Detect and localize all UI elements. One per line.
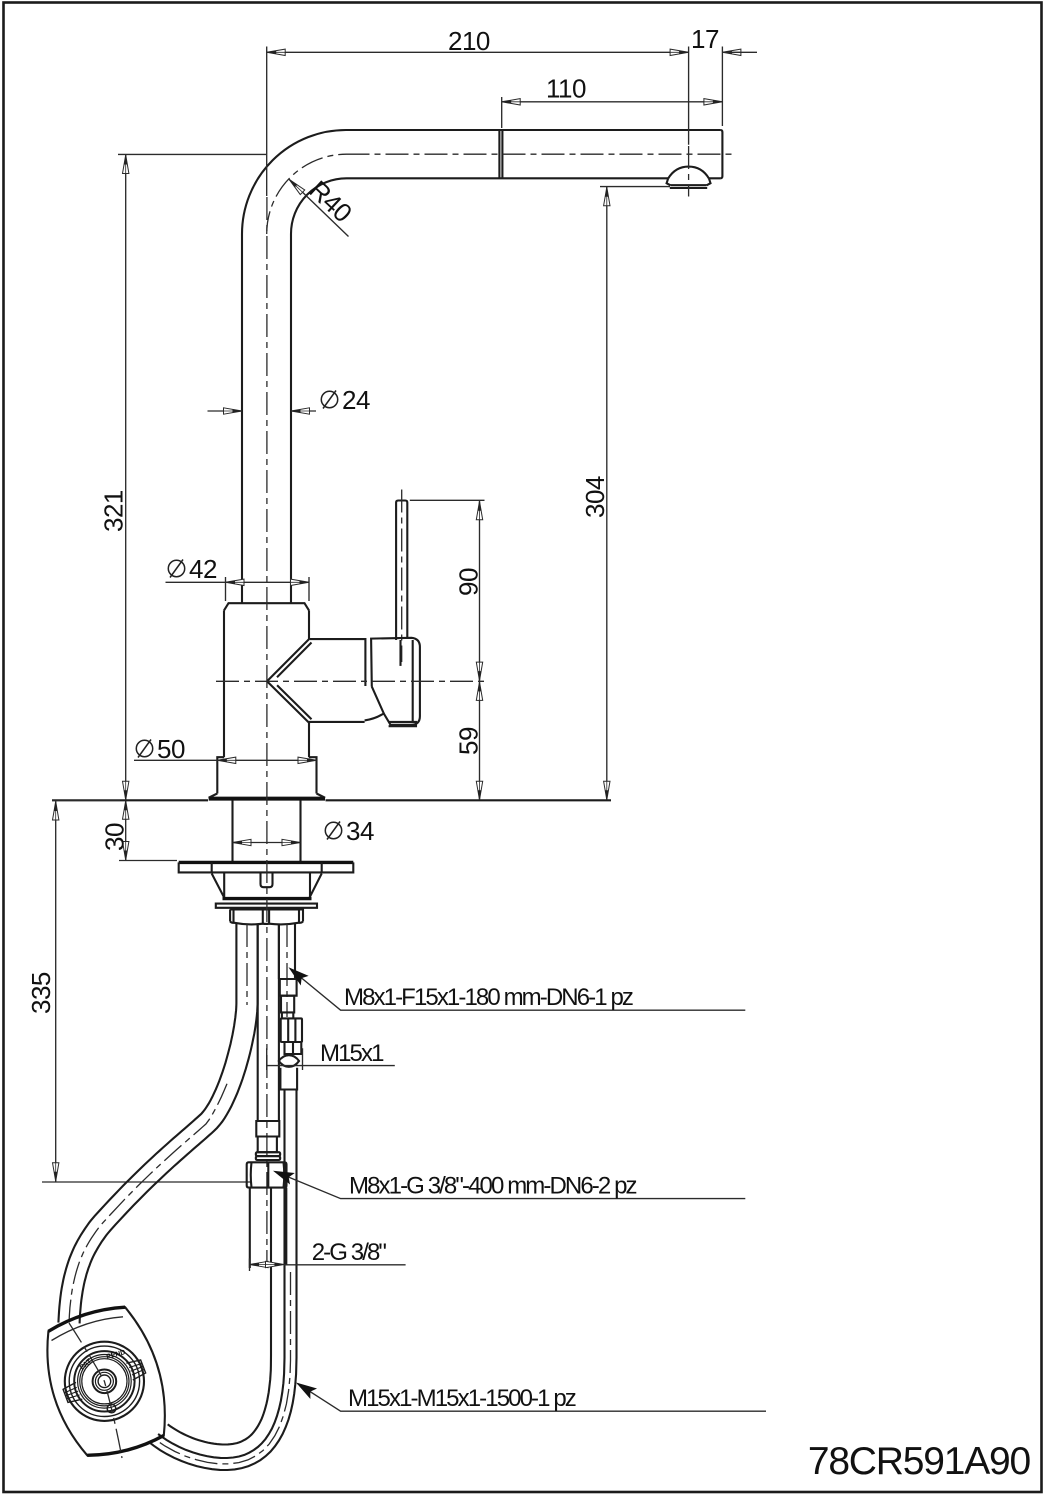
- svg-text:59: 59: [454, 727, 484, 755]
- svg-text:50: 50: [157, 734, 185, 764]
- svg-text:24: 24: [342, 385, 370, 415]
- svg-text:335: 335: [26, 972, 56, 1014]
- svg-text:M15x1-M15x1-1500-1 pz: M15x1-M15x1-1500-1 pz: [348, 1385, 576, 1412]
- svg-text:30: 30: [100, 823, 130, 851]
- svg-text:17: 17: [691, 24, 719, 54]
- svg-text:42: 42: [189, 554, 217, 584]
- svg-text:78CR591A90: 78CR591A90: [808, 1440, 1031, 1483]
- svg-text:210: 210: [448, 26, 490, 56]
- svg-text:110: 110: [546, 74, 586, 104]
- svg-text:M15x1: M15x1: [320, 1040, 384, 1067]
- svg-text:90: 90: [454, 568, 484, 596]
- svg-text:321: 321: [99, 490, 129, 532]
- svg-text:2-G 3/8": 2-G 3/8": [312, 1239, 387, 1266]
- svg-text:M8x1-F15x1-180 mm-DN6-1 pz: M8x1-F15x1-180 mm-DN6-1 pz: [344, 984, 633, 1011]
- svg-text:M8x1-G 3/8"-400 mm-DN6-2 pz: M8x1-G 3/8"-400 mm-DN6-2 pz: [349, 1173, 637, 1200]
- svg-text:304: 304: [580, 476, 610, 518]
- svg-text:34: 34: [346, 816, 374, 846]
